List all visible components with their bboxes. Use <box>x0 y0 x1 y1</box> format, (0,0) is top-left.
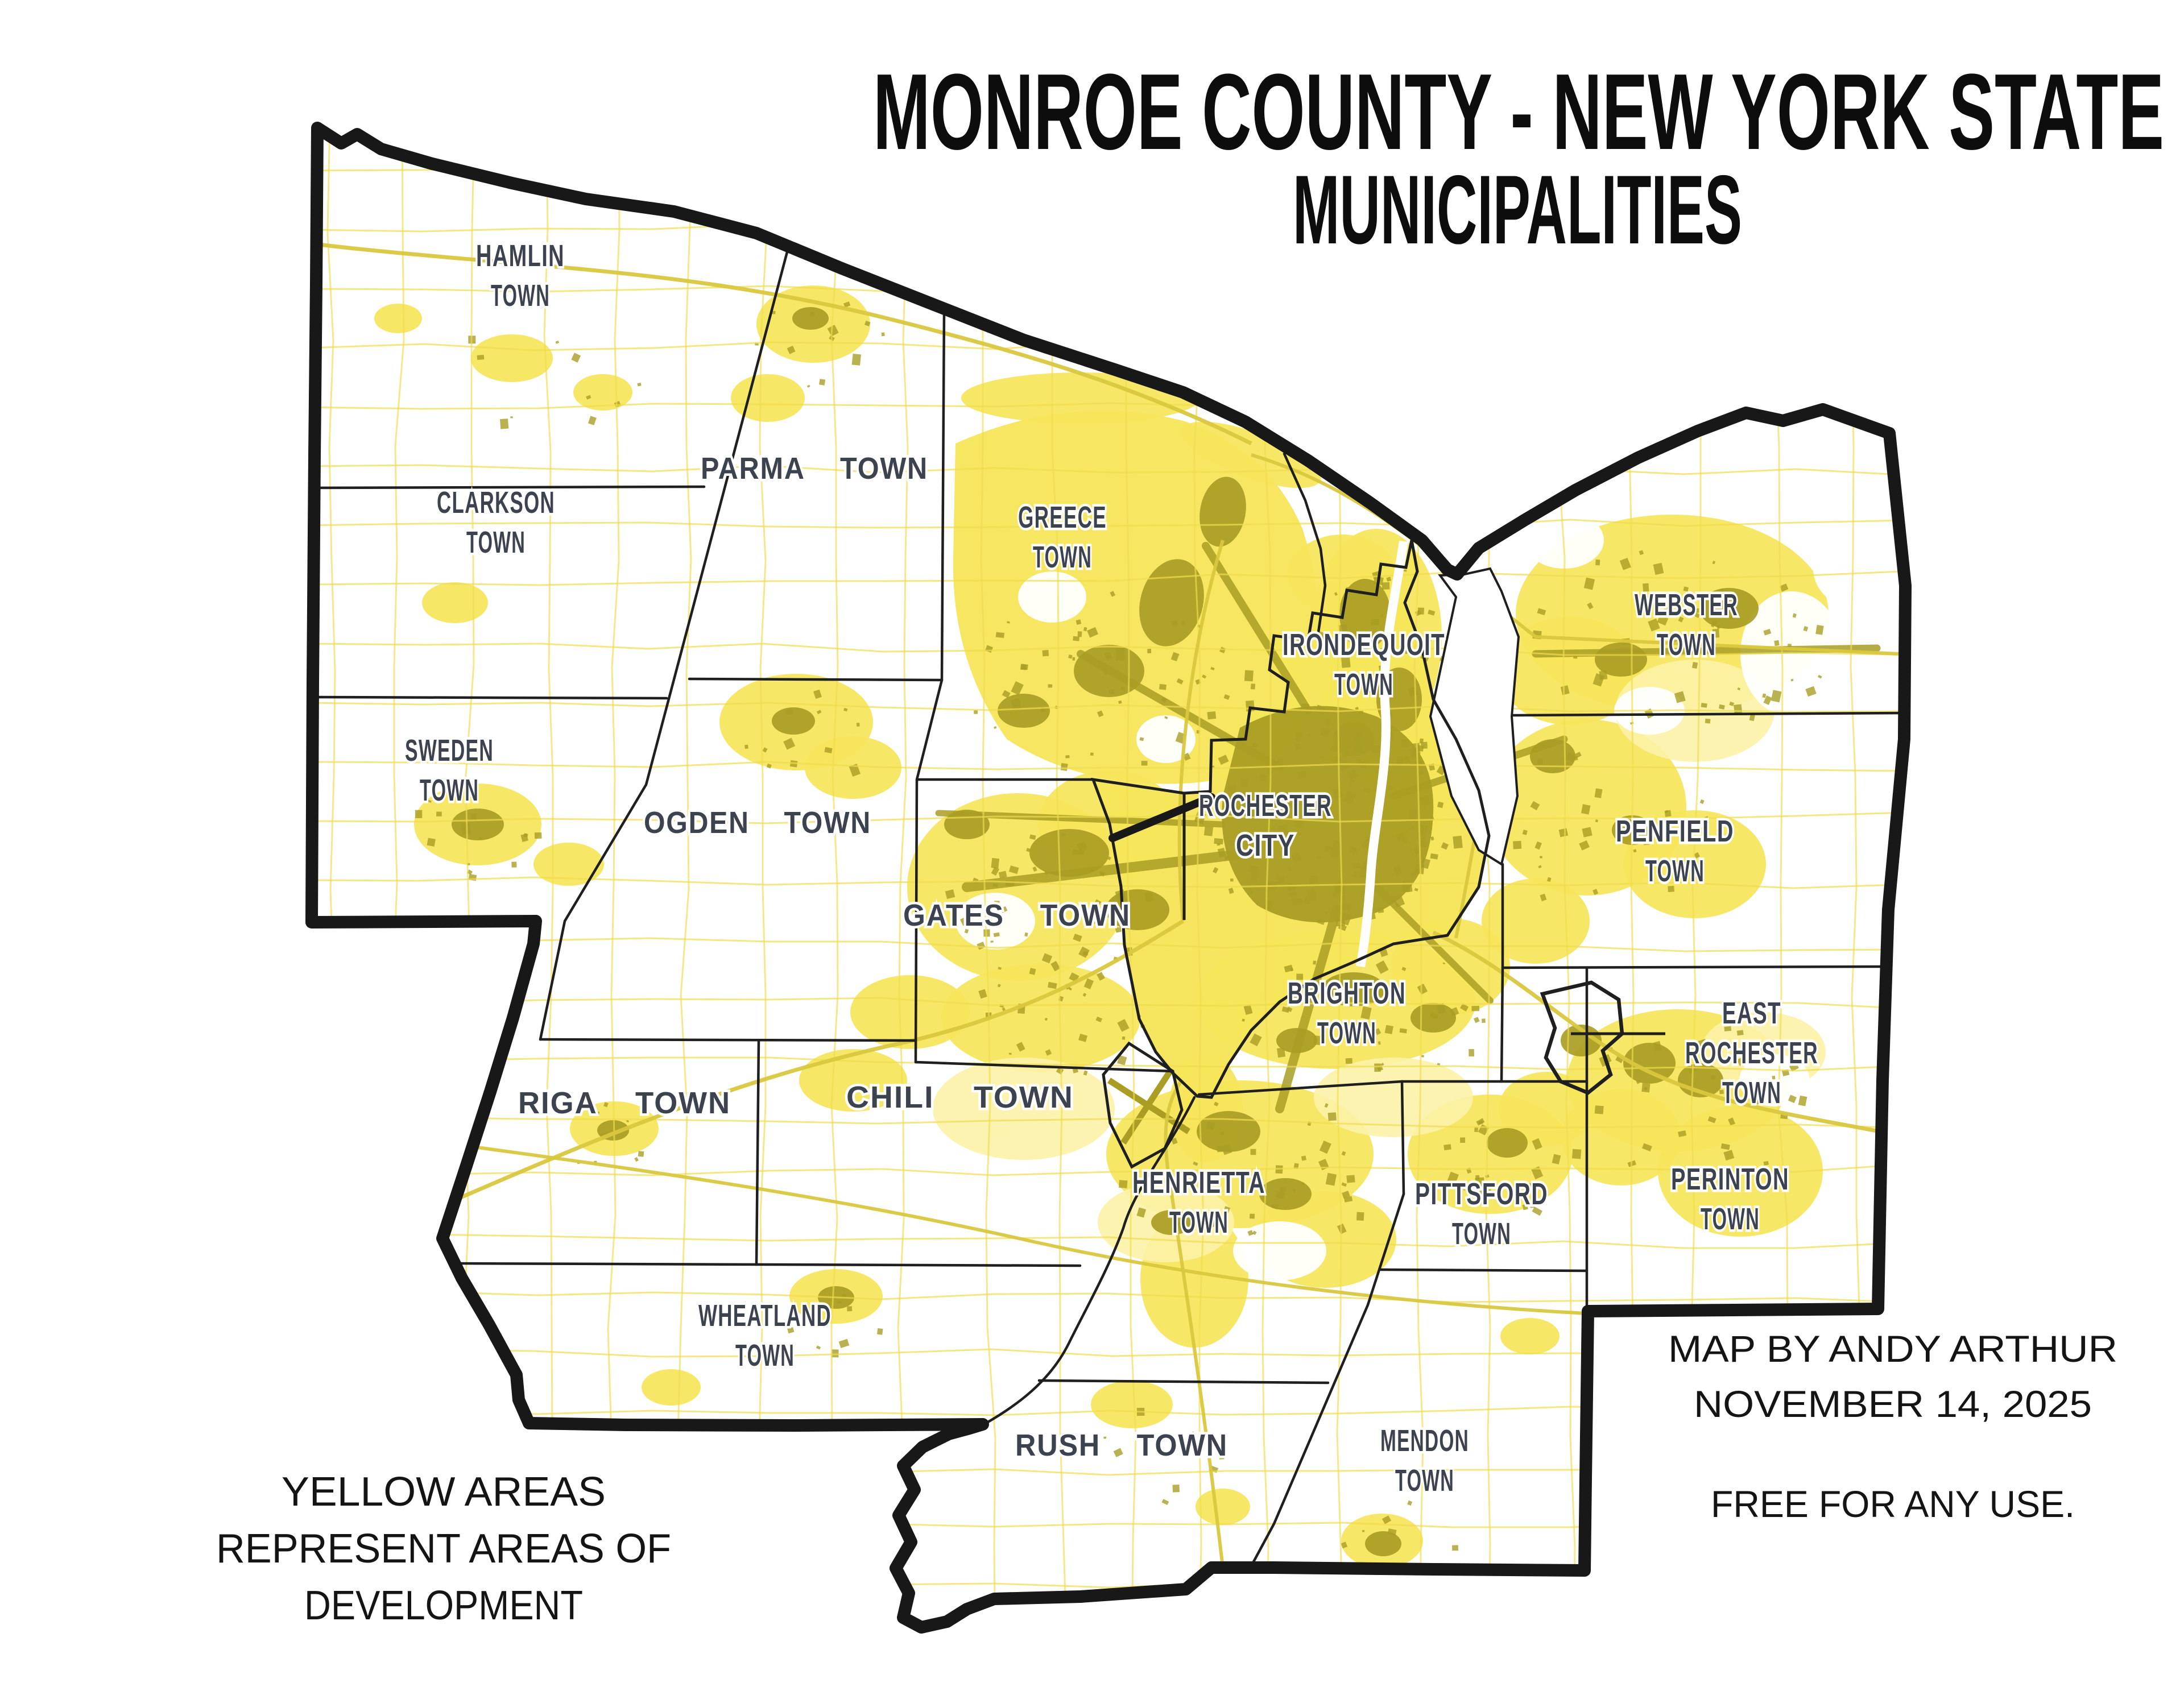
town-label-chili: CHILI TOWN <box>846 1080 1074 1114</box>
map-title-line2: MUNICIPALITIES <box>1293 155 1742 264</box>
town-label-henrietta: TOWN <box>1169 1205 1228 1240</box>
town-label-east-rochester: EAST <box>1722 996 1781 1030</box>
town-label-sweden: TOWN <box>420 773 479 807</box>
town-label-penfield: PENFIELD <box>1616 814 1734 848</box>
town-label-mendon: TOWN <box>1395 1464 1454 1498</box>
legend-line1: YELLOW AREAS <box>282 1469 606 1515</box>
town-label-east-rochester: TOWN <box>1722 1076 1781 1110</box>
town-label-wheatland: TOWN <box>735 1338 795 1373</box>
town-label-pittsford: PITTSFORD <box>1415 1177 1548 1211</box>
credit-license: FREE FOR ANY USE. <box>1711 1483 2075 1525</box>
town-label-perinton: PERINTON <box>1671 1162 1789 1196</box>
map-title-line1: MONROE COUNTY - NEW YORK STATE <box>873 52 2164 172</box>
town-label-greece: GREECE <box>1018 500 1107 534</box>
town-label-pittsford: TOWN <box>1452 1217 1511 1251</box>
town-label-riga: RIGA TOWN <box>518 1086 731 1120</box>
town-label-greece: TOWN <box>1033 540 1092 574</box>
legend-line3: DEVELOPMENT <box>304 1583 583 1628</box>
town-label-rochester: CITY <box>1236 828 1295 863</box>
credit-author: MAP BY ANDY ARTHUR <box>1668 1328 2117 1370</box>
town-label-clarkson: CLARKSON <box>437 486 555 520</box>
town-label-mendon: MENDON <box>1380 1424 1469 1458</box>
town-label-wheatland: WHEATLAND <box>698 1299 832 1333</box>
town-label-hamlin: HAMLIN <box>476 239 565 273</box>
map-layers: HAMLINTOWNCLARKSONTOWNSWEDENTOWNPARMA TO… <box>0 0 2184 1687</box>
town-label-irondequoit: IRONDEQUOIT <box>1283 628 1445 662</box>
town-label-perinton: TOWN <box>1701 1202 1760 1236</box>
town-label-webster: TOWN <box>1657 628 1716 662</box>
town-label-parma: PARMA TOWN <box>701 451 928 486</box>
town-label-webster: WEBSTER <box>1635 588 1738 622</box>
town-label-hamlin: TOWN <box>491 279 550 313</box>
legend-line2: REPRESENT AREAS OF <box>216 1526 671 1572</box>
town-label-sweden: SWEDEN <box>405 733 494 768</box>
credit-date: NOVEMBER 14, 2025 <box>1694 1383 2092 1425</box>
town-label-rochester: ROCHESTER <box>1199 789 1332 823</box>
town-label-penfield: TOWN <box>1645 854 1705 888</box>
town-label-ogden: OGDEN TOWN <box>644 806 871 840</box>
monroe-county-map: HAMLINTOWNCLARKSONTOWNSWEDENTOWNPARMA TO… <box>0 0 2184 1687</box>
town-label-clarkson: TOWN <box>466 525 526 559</box>
town-label-east-rochester: ROCHESTER <box>1685 1036 1818 1070</box>
town-label-henrietta: HENRIETTA <box>1132 1166 1265 1200</box>
town-label-brighton: TOWN <box>1317 1016 1376 1050</box>
town-label-irondequoit: TOWN <box>1334 668 1393 702</box>
town-label-gates: GATES TOWN <box>903 898 1131 932</box>
town-label-brighton: BRIGHTON <box>1288 976 1406 1010</box>
town-label-rush: RUSH TOWN <box>1015 1428 1228 1462</box>
map-page: HAMLINTOWNCLARKSONTOWNSWEDENTOWNPARMA TO… <box>0 0 2184 1687</box>
